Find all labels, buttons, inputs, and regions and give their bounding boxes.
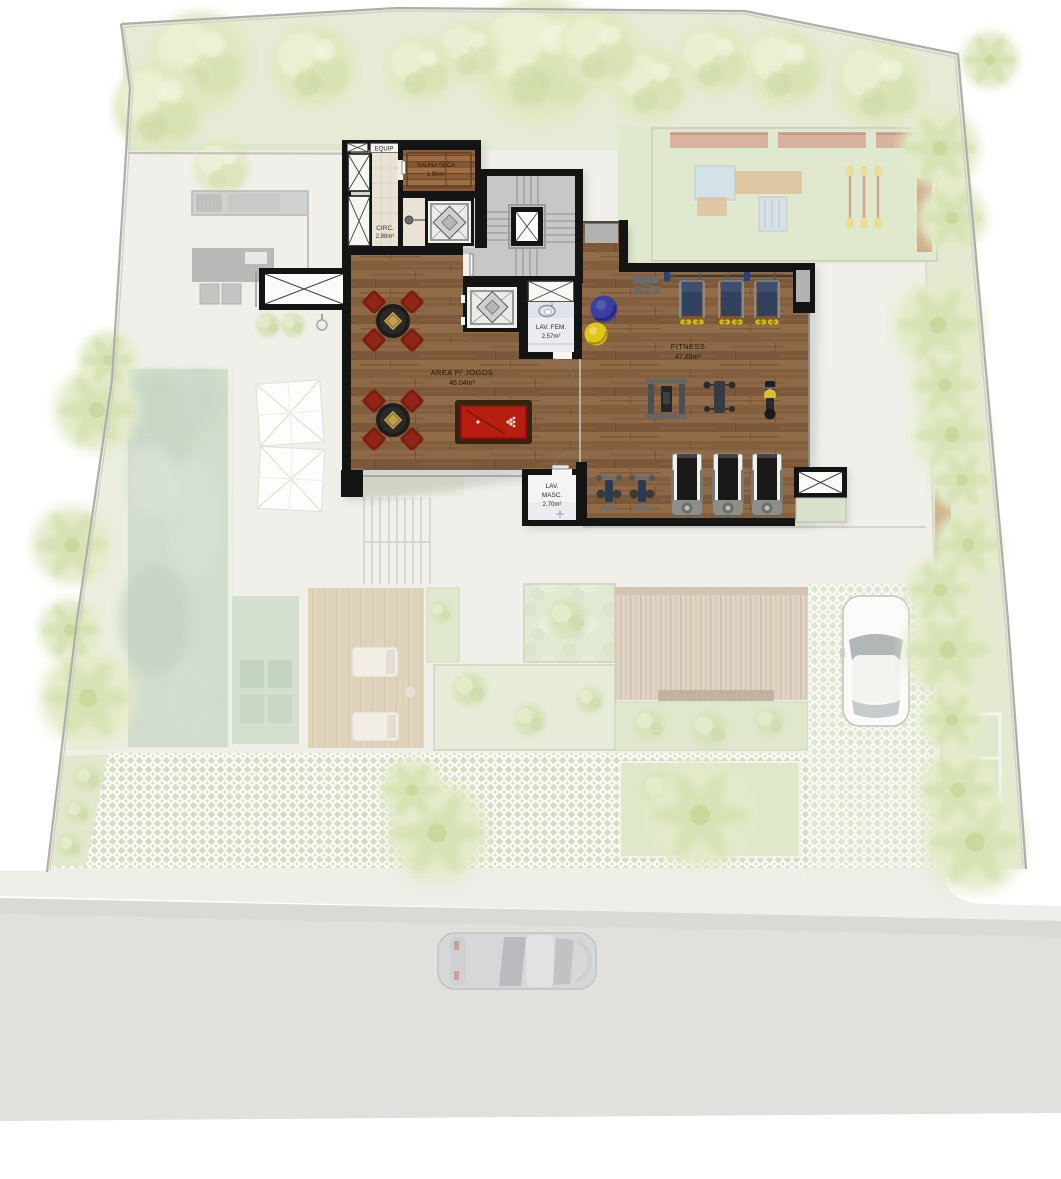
svg-text:LAV.: LAV. [545, 483, 558, 490]
svg-text:2.70m²: 2.70m² [543, 502, 562, 508]
svg-text:47.65m²: 47.65m² [675, 354, 701, 361]
svg-text:2.88m²: 2.88m² [376, 234, 395, 240]
svg-text:1.90m²: 1.90m² [427, 172, 446, 178]
svg-text:LAV. FEM.: LAV. FEM. [536, 324, 567, 331]
svg-text:CIRC.: CIRC. [376, 225, 394, 232]
svg-text:AREA P/ JOGOS: AREA P/ JOGOS [431, 368, 494, 377]
svg-text:46.04m²: 46.04m² [449, 380, 475, 387]
svg-text:MASC.: MASC. [542, 492, 563, 499]
svg-text:2.57m²: 2.57m² [542, 334, 561, 340]
svg-text:SAUNA SECA: SAUNA SECA [417, 163, 455, 169]
svg-text:EQUIP: EQUIP [375, 147, 394, 153]
svg-text:FITNESS: FITNESS [671, 342, 705, 351]
